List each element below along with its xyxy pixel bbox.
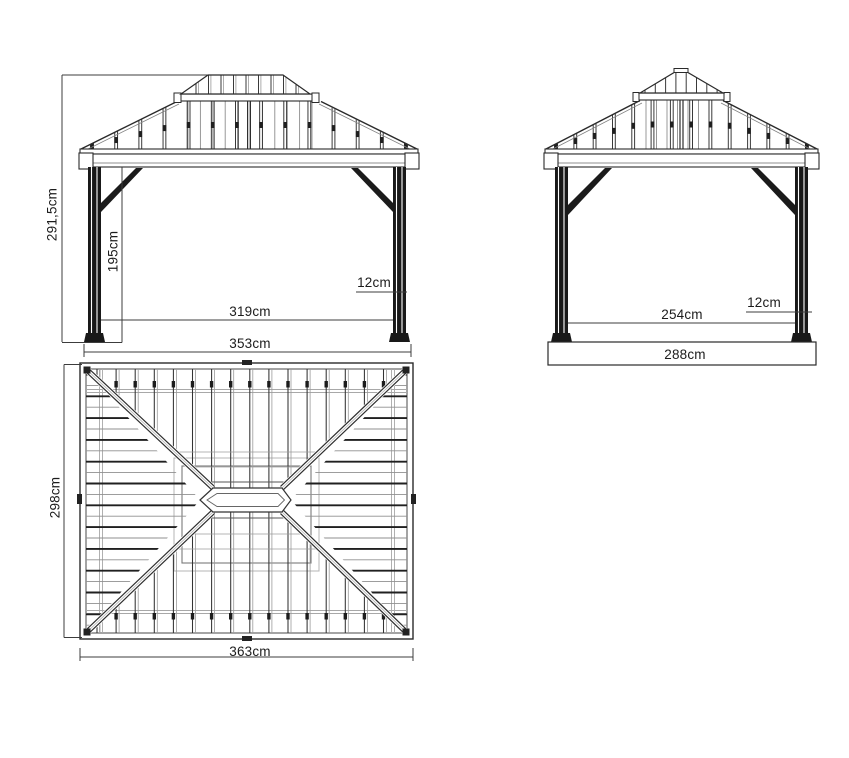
side-outer-width-label: 288cm (645, 346, 725, 363)
plan-depth-label: 298cm (47, 458, 64, 538)
front-total-height-label: 291,5cm (44, 175, 61, 255)
roof-plan-drawing (64, 360, 416, 661)
plan-width-label: 363cm (210, 643, 290, 660)
side-roof-overhang-label: 12cm (734, 294, 794, 311)
front-inner-width-label: 319cm (210, 303, 290, 320)
front-clear-height-label: 195cm (105, 222, 122, 282)
technical-drawing-canvas: 291,5cm 195cm 319cm 353cm 12cm 254cm 288… (0, 0, 849, 758)
gazebo-dimension-drawing (0, 0, 849, 758)
front-outer-width-label: 353cm (210, 335, 290, 352)
side-inner-width-label: 254cm (642, 306, 722, 323)
front-roof-overhang-label: 12cm (344, 274, 404, 291)
